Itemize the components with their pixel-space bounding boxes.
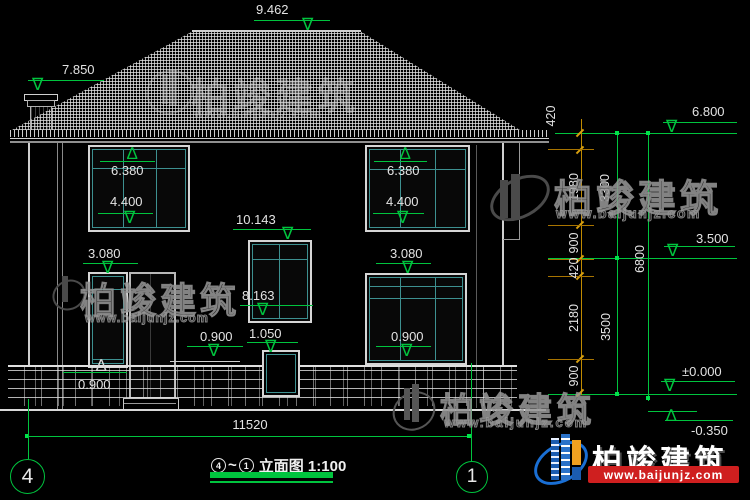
window-gf-right bbox=[365, 273, 467, 365]
dim-dot bbox=[615, 131, 619, 135]
dim-420-mid: 420 bbox=[567, 246, 581, 290]
level-porch-left: 0.900 bbox=[78, 378, 111, 392]
window-stair-small bbox=[262, 350, 300, 397]
level-ridge-line bbox=[254, 20, 330, 21]
level-grade-line bbox=[665, 420, 733, 421]
level-ground: ±0.000 bbox=[682, 365, 722, 379]
roof-fascia-line-upper bbox=[10, 138, 549, 139]
title-axis-to-circle: 1 bbox=[239, 458, 254, 473]
window-2f-right-mullion2 bbox=[435, 149, 436, 228]
dim-dot bbox=[615, 392, 619, 396]
title-underline-thin bbox=[210, 481, 333, 483]
level-stair-win-sill-line bbox=[240, 305, 313, 306]
watermark-right-building-icon bbox=[511, 174, 520, 220]
axis-4-line bbox=[28, 399, 29, 459]
window-gf-right-inner-frame bbox=[369, 277, 463, 361]
level-win2l-sill-triangle-icon: ∇ bbox=[124, 211, 135, 225]
watermark-bottom-building-icon bbox=[404, 388, 410, 420]
wall-left-edge bbox=[28, 143, 30, 365]
door-step-line bbox=[124, 403, 176, 404]
dim-dot bbox=[646, 396, 650, 400]
level-stair-win-top-line bbox=[233, 229, 311, 230]
porch-slab-line bbox=[170, 361, 240, 362]
level-win2r-top-triangle-icon: ∆ bbox=[400, 147, 410, 161]
level-win2l-top-triangle-icon: ∆ bbox=[127, 147, 137, 161]
watermark-right-building-icon bbox=[500, 180, 508, 218]
logo-url-bar: www.baijunjz.com bbox=[588, 466, 739, 483]
dim-dot bbox=[615, 256, 619, 260]
window-stair-small-inner-frame bbox=[266, 354, 296, 393]
roof-fascia-line-lower bbox=[10, 141, 549, 143]
watermark-right-url: www.baijunjz.com bbox=[556, 205, 701, 221]
wall-right-belt-step bbox=[503, 239, 520, 240]
watermark-bottom-building-icon bbox=[412, 384, 419, 422]
window-2f-left bbox=[88, 145, 190, 232]
dim-tick bbox=[576, 146, 584, 154]
dim-dot bbox=[646, 131, 650, 135]
window-gf-right-transom2 bbox=[369, 298, 463, 299]
level-win2r-top: 6.380 bbox=[387, 164, 420, 178]
title-underline-thick bbox=[210, 472, 333, 478]
logo-building-orange-icon bbox=[572, 440, 581, 465]
level-win2r-sill: 4.400 bbox=[386, 195, 419, 209]
dim-2180: 2180 bbox=[567, 296, 581, 340]
level-ridge-triangle-icon: ∇ bbox=[302, 18, 313, 32]
roof-eave-tile-band bbox=[10, 130, 549, 137]
watermark-roof-url: www.baijunjz.com bbox=[194, 106, 322, 121]
chimney-body bbox=[30, 106, 52, 130]
dim-11520: 11520 bbox=[226, 418, 274, 432]
level-stair-win-top-triangle-icon: ∇ bbox=[282, 227, 293, 241]
level-chimney: 7.850 bbox=[62, 63, 95, 77]
window-gf-right-mullion2 bbox=[435, 277, 436, 361]
level-chimney-triangle-icon: ∇ bbox=[32, 78, 43, 92]
window-2f-left-mullion2 bbox=[156, 149, 157, 228]
level-ridge: 9.462 bbox=[256, 3, 289, 17]
level-win2r-sill-triangle-icon: ∇ bbox=[397, 211, 408, 225]
logo-building-icon bbox=[572, 467, 581, 480]
level-porch-left-triangle-icon: ∆ bbox=[96, 359, 106, 373]
level-stair-win-sill-triangle-icon: ∇ bbox=[257, 303, 268, 317]
dim-3500: 3500 bbox=[599, 305, 613, 349]
window-stair-mid-transom bbox=[252, 259, 308, 260]
dim-11520-line bbox=[28, 436, 471, 437]
logo-building-icon bbox=[561, 434, 570, 480]
axis-bubble-4: 4 bbox=[10, 459, 45, 494]
watermark-left-building-icon bbox=[62, 276, 68, 302]
level-win2l-top: 6.380 bbox=[111, 164, 144, 178]
level-stair-small-win-triangle-icon: ∇ bbox=[265, 340, 276, 354]
watermark-roof-building-icon bbox=[170, 70, 177, 106]
watermark-right-swoosh-icon bbox=[482, 165, 557, 230]
level-win2r-top-line bbox=[374, 161, 427, 162]
watermark-bottom-url: www.baijunjz.com bbox=[444, 415, 588, 430]
level-gfwin-right-sill-triangle-icon: ∇ bbox=[401, 344, 412, 358]
level-gfwin-right-top-triangle-icon: ∇ bbox=[402, 261, 413, 275]
level-porch-mid-triangle-icon: ∇ bbox=[208, 344, 219, 358]
level-second-floor: 3.500 bbox=[696, 232, 729, 246]
roof-ridge-line bbox=[192, 30, 361, 32]
logo-url-text: www.baijunjz.com bbox=[604, 468, 724, 482]
level-porch-left-line bbox=[63, 372, 127, 373]
level-ground-triangle-icon: ∇ bbox=[664, 379, 675, 393]
logo-building-icon bbox=[551, 438, 559, 480]
title-axis-from-circle: 4 bbox=[211, 458, 226, 473]
axis-bubble-1-label: 1 bbox=[467, 466, 478, 488]
dim-ext-line bbox=[548, 149, 594, 150]
window-stair-mid-mullion bbox=[279, 244, 280, 319]
level-second-floor-triangle-icon: ∇ bbox=[667, 244, 678, 258]
wall-right-edge bbox=[502, 143, 504, 365]
window-2f-right bbox=[365, 145, 470, 232]
watermark-roof-building-icon bbox=[162, 74, 168, 104]
level-win2l-top-line bbox=[100, 161, 155, 162]
axis-bubble-1: 1 bbox=[456, 461, 488, 493]
level-eave-triangle-icon: ∇ bbox=[666, 120, 677, 134]
elevation-drawing-canvas: 9.462 ∇ 7.850 ∇ 10.143 ∇ 8.163 ∇ ∆ 6.380… bbox=[0, 0, 750, 500]
level-stair-win-top: 10.143 bbox=[236, 213, 276, 227]
watermark-left-url: www.baijunjz.com bbox=[85, 311, 209, 325]
window-gf-right-transom1 bbox=[369, 286, 463, 287]
level-win2l-sill: 4.400 bbox=[110, 195, 143, 209]
level-eave: 6.800 bbox=[692, 105, 725, 119]
dim-420-top: 420 bbox=[544, 94, 558, 138]
dim-6800: 6800 bbox=[633, 237, 647, 281]
axis-bubble-4-label: 4 bbox=[22, 465, 34, 489]
